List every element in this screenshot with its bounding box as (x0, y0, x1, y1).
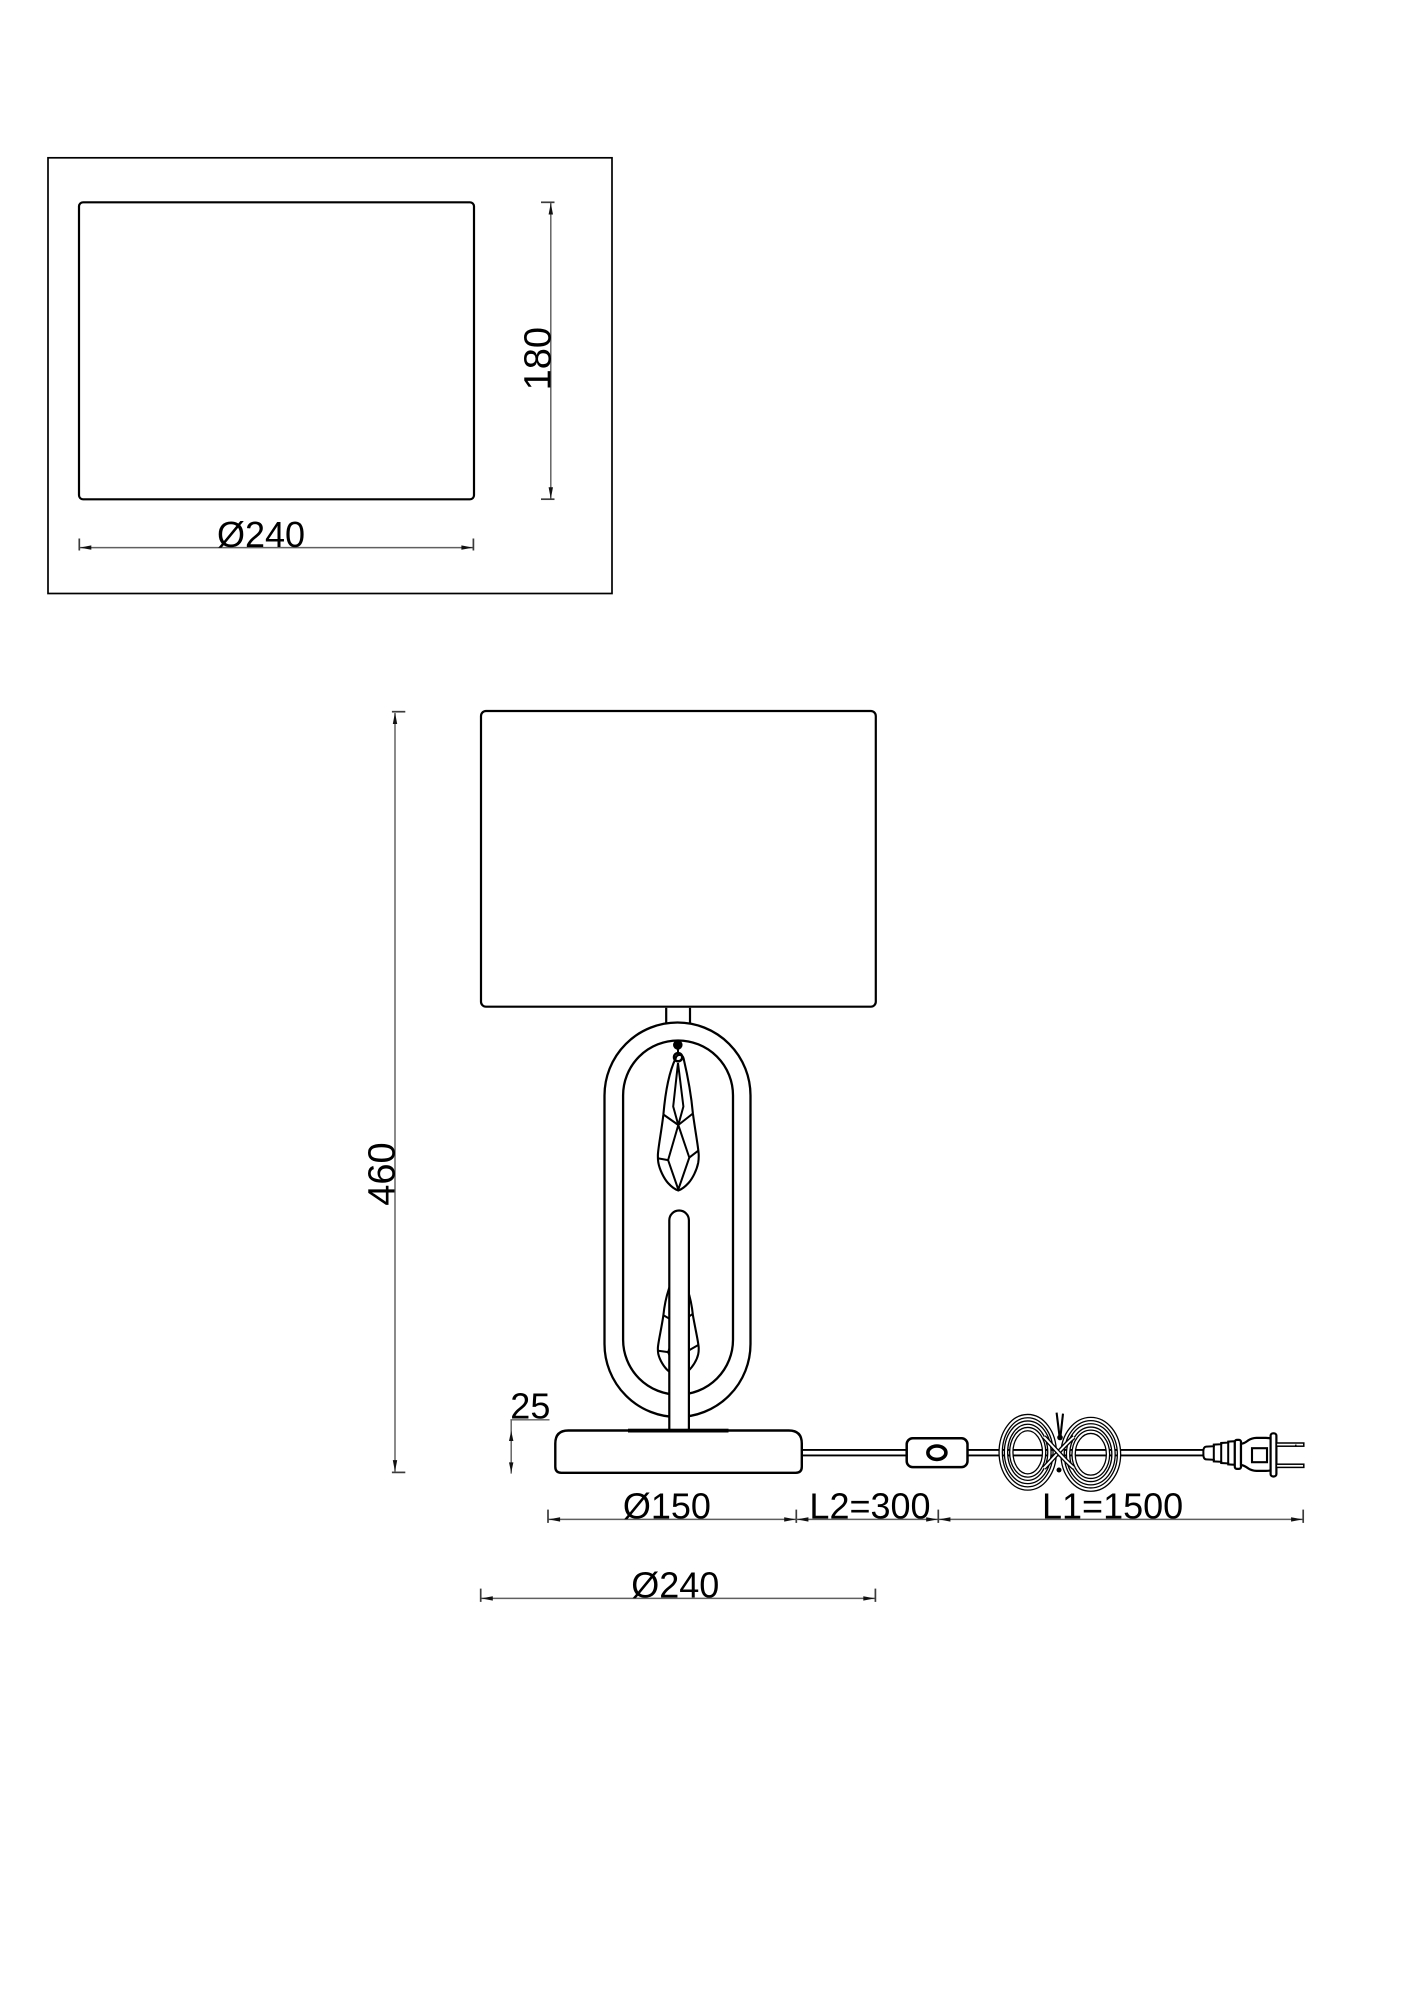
svg-text:L1=1500: L1=1500 (1042, 1486, 1183, 1527)
svg-text:L2=300: L2=300 (809, 1486, 930, 1527)
svg-text:Ø240: Ø240 (631, 1565, 719, 1606)
svg-text:Ø150: Ø150 (623, 1486, 711, 1527)
svg-text:180: 180 (518, 327, 560, 390)
svg-text:Ø240: Ø240 (217, 514, 305, 555)
svg-text:460: 460 (362, 1142, 404, 1205)
